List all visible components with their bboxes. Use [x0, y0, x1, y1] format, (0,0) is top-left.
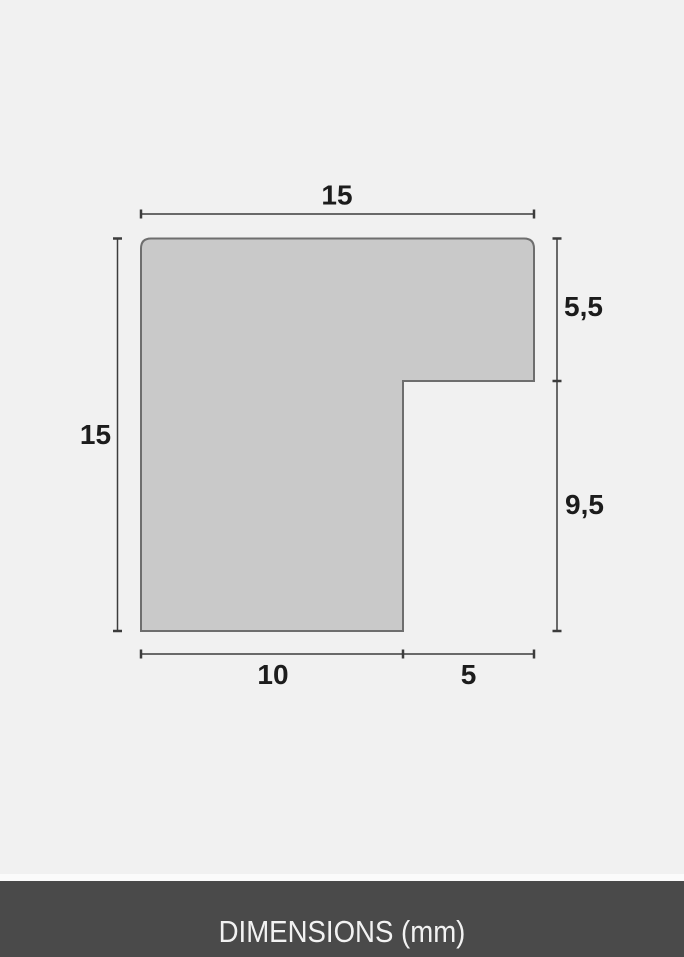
svg-text:5: 5 [461, 659, 477, 690]
svg-text:15: 15 [321, 180, 352, 211]
svg-text:10: 10 [257, 659, 288, 690]
svg-text:5,5: 5,5 [564, 291, 603, 322]
svg-text:15: 15 [80, 419, 111, 450]
svg-text:9,5: 9,5 [565, 489, 604, 520]
